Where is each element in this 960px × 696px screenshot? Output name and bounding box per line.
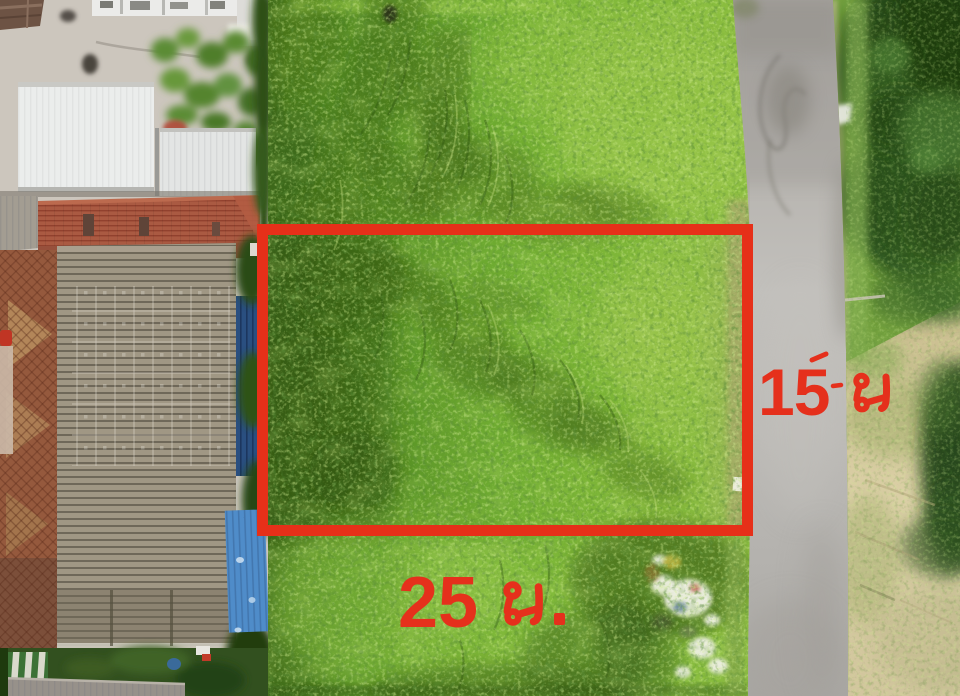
- svg-text:15: 15: [758, 355, 829, 429]
- svg-text:25: 25: [398, 563, 478, 643]
